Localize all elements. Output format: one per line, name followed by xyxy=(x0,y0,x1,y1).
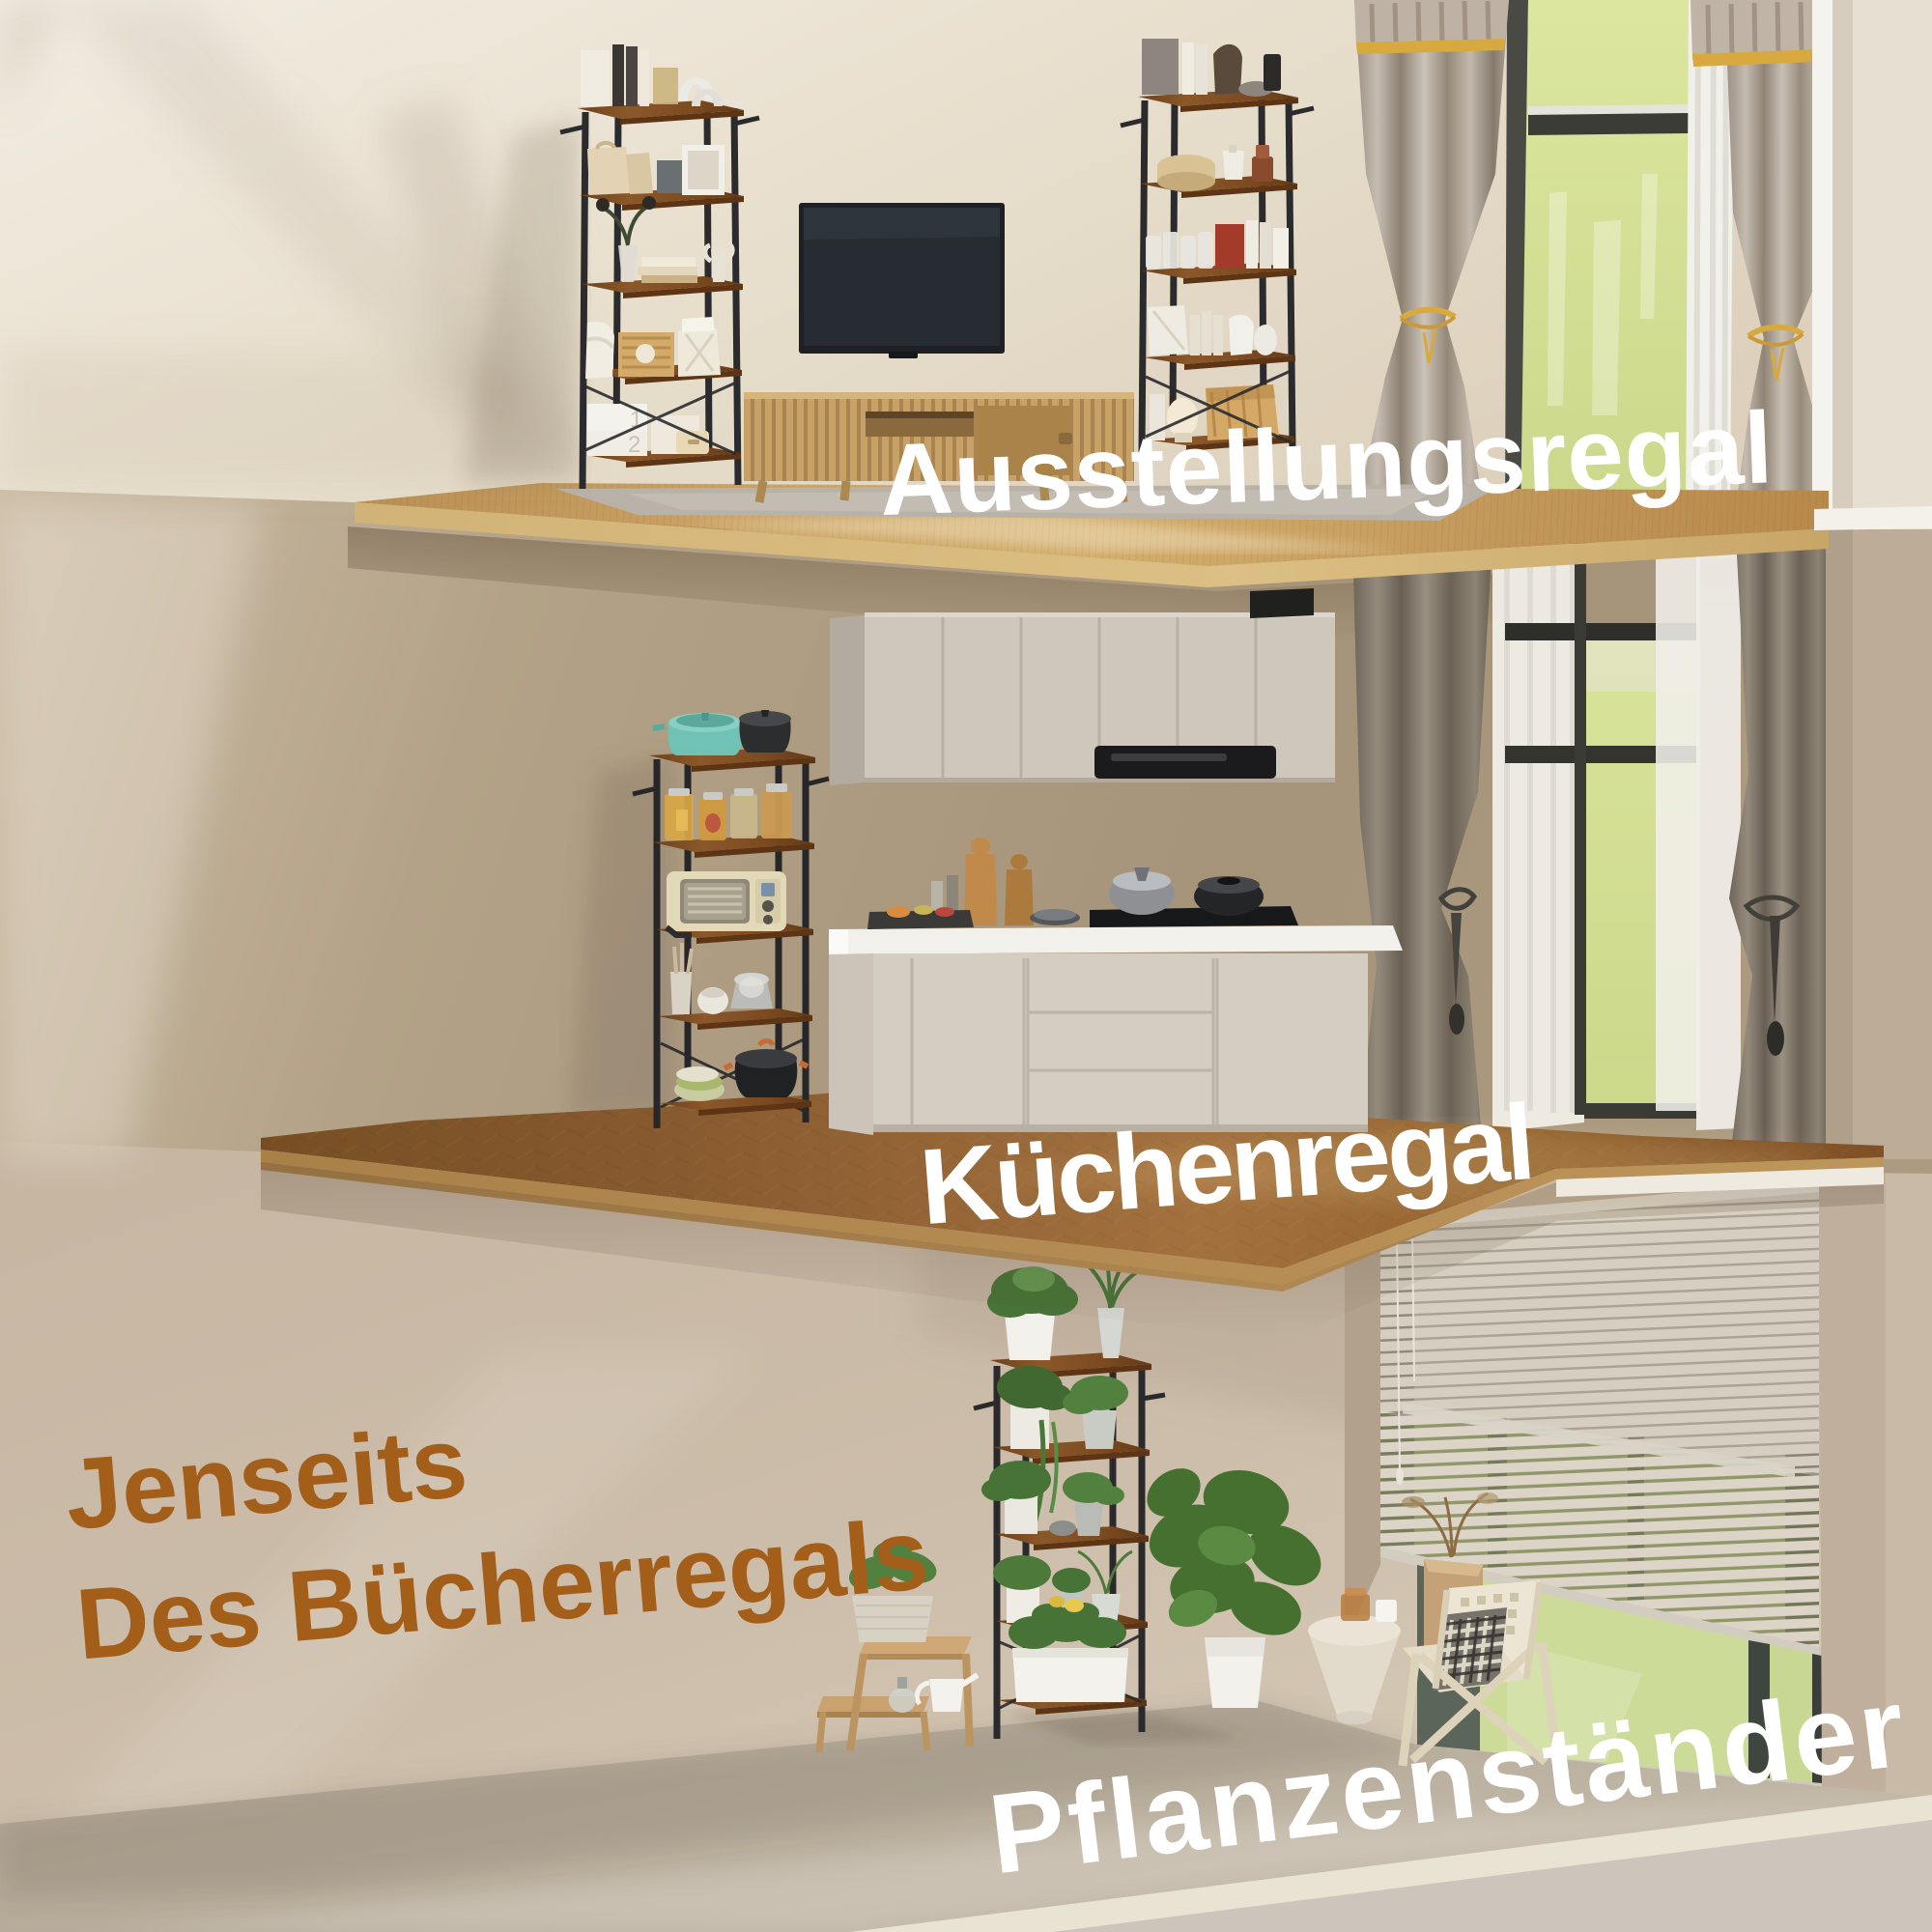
svg-text:2: 2 xyxy=(628,432,640,458)
